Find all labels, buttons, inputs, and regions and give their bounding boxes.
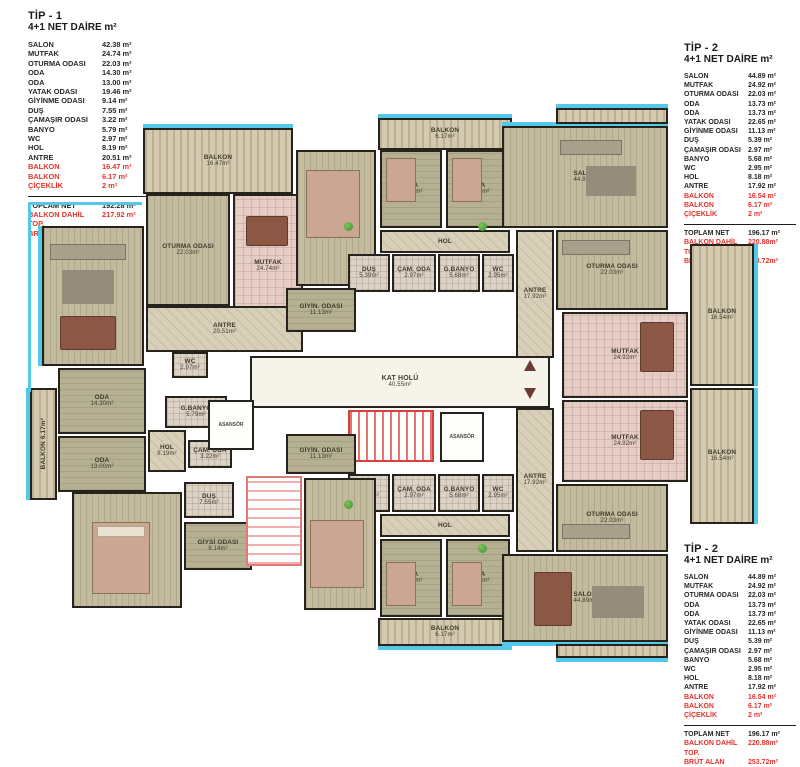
bed-icon — [386, 158, 416, 202]
room-balkon-tip2bottom-right: BALKON16.54m² — [690, 388, 754, 524]
plant-icon — [344, 500, 353, 509]
legend-row: BALKON16.54 m² — [684, 693, 796, 702]
kitchen-table-icon — [246, 216, 288, 246]
bed-icon — [452, 158, 482, 202]
elevator-right: ASANSÖR — [440, 412, 484, 462]
legend-row: ÇAMAŞIR ODASI2.97 m² — [684, 146, 796, 155]
legend-row: ANTRE17.92 m² — [684, 182, 796, 191]
arrow-down-icon — [524, 388, 536, 399]
legend-row: GİYİNME ODASI11.13 m² — [684, 628, 796, 637]
room-wc-tip2bottom: WC2.95m² — [482, 474, 514, 512]
room-hol-tip1: HOL8.19m² — [148, 430, 186, 472]
pillow-icon — [97, 526, 145, 537]
legend-row: SALON44.89 m² — [684, 573, 796, 582]
room-wc-tip1: WC2.97m² — [172, 352, 208, 378]
legend-tip1-subtitle: 4+1 NET DAİRE m² — [28, 22, 166, 33]
room-kat-holu: KAT HOLÜ40.55m² — [250, 356, 550, 408]
cicecklik-line-top-left — [30, 202, 142, 205]
legend-tip2-bottom-subtitle: 4+1 NET DAİRE m² — [684, 555, 796, 566]
legend-row: YATAK ODASI22.65 m² — [684, 619, 796, 628]
staircase-main — [348, 410, 434, 462]
legend-row: ANTRE17.92 m² — [684, 683, 796, 692]
legend-row: OTURMA ODASI22.03 m² — [28, 59, 166, 68]
room-dus-tip2top: DUŞ5.39m² — [348, 254, 390, 292]
room-camasir-tip2top: ÇAM. ODA2.97m² — [392, 254, 436, 292]
sofa-icon — [560, 140, 622, 155]
legend-row: ÇAMAŞIR ODASI2.97 m² — [684, 647, 796, 656]
legend-row: SALON44.89 m² — [684, 72, 796, 81]
staircase-fire-escape — [246, 476, 302, 566]
legend-row: BALKON6.17 m² — [684, 702, 796, 711]
legend-tip2-top-rows: SALON44.89 m²MUTFAK24.92 m²OTURMA ODASI2… — [684, 72, 796, 219]
room-antre-tip2bottom: ANTRE17.92m² — [516, 408, 554, 552]
legend-row: ODA13.73 m² — [684, 601, 796, 610]
legend-row: MUTFAK24.92 m² — [684, 81, 796, 90]
legend-row: ODA13.00 m² — [28, 78, 166, 87]
room-oda2-tip1: ODA13.00m² — [58, 436, 146, 492]
rug-icon — [62, 270, 114, 304]
cicecklik-line-left — [28, 202, 31, 392]
legend-row: BALKON6.17 m² — [684, 201, 796, 210]
legend-row: OTURMA ODASI22.03 m² — [684, 90, 796, 99]
legend-row: OTURMA ODASI22.03 m² — [684, 591, 796, 600]
legend-row: WC2.95 m² — [684, 665, 796, 674]
legend-tip2-bottom-rows: SALON44.89 m²MUTFAK24.92 m²OTURMA ODASI2… — [684, 573, 796, 720]
sofa-icon — [562, 524, 630, 539]
cicecklik-strip-bottom-right — [556, 644, 668, 658]
bed-icon — [452, 562, 482, 606]
legend-tip2-top-title: TİP - 2 — [684, 42, 796, 54]
legend-total-row: TOPLAM NET196.17 m² — [684, 229, 796, 238]
room-wc-tip2top: WC2.95m² — [482, 254, 514, 292]
rug-icon — [586, 166, 636, 196]
plant-icon — [344, 222, 353, 231]
room-gbanyo-tip2bottom: G.BANYO5.68m² — [438, 474, 480, 512]
room-balkon-tip1-top: BALKON16.47m² — [143, 128, 293, 194]
cicecklik-strip-top-right — [556, 108, 668, 124]
legend-tip2-bottom: TİP - 2 4+1 NET DAİRE m² SALON44.89 m²MU… — [684, 543, 796, 767]
legend-total-row: TOPLAM NET196.17 m² — [684, 730, 796, 739]
dining-table-icon — [60, 316, 116, 350]
legend-row: ÇAMAŞIR ODASI3.22 m² — [28, 115, 166, 124]
legend-row: WC2.95 m² — [684, 164, 796, 173]
legend-row: HOL8.18 m² — [684, 674, 796, 683]
room-dus-tip1: DUŞ7.55m² — [184, 482, 234, 518]
arrow-up-icon — [524, 360, 536, 371]
room-camasir-tip2bottom: ÇAM. ODA2.97m² — [392, 474, 436, 512]
room-hol-tip2bottom: HOL — [380, 514, 510, 537]
rug-icon — [592, 586, 644, 618]
legend-row: ODA13.73 m² — [684, 109, 796, 118]
legend-row: BANYO5.68 m² — [684, 155, 796, 164]
legend-tip2-bottom-totals: TOPLAM NET196.17 m²BALKON DAHİL TOP.220.… — [684, 725, 796, 767]
legend-total-row: BRÜT ALAN253.72m² — [684, 758, 796, 767]
plant-icon — [478, 222, 487, 231]
legend-row: DUŞ5.39 m² — [684, 637, 796, 646]
plant-icon — [478, 544, 487, 553]
room-oturma-tip1: OTURMA ODASI22.03m² — [146, 194, 230, 306]
room-giysi-tip1: GİYSİ ODASI9.14m² — [184, 522, 252, 570]
legend-row: YATAK ODASI22.65 m² — [684, 118, 796, 127]
bed-icon — [386, 562, 416, 606]
legend-row: MUTFAK24.74 m² — [28, 49, 166, 58]
legend-row: ODA13.73 m² — [684, 610, 796, 619]
legend-tip1-title: TİP - 1 — [28, 10, 166, 22]
room-hol-tip2top: HOL — [380, 230, 510, 253]
legend-tip2-top: TİP - 2 4+1 NET DAİRE m² SALON44.89 m²MU… — [684, 42, 796, 266]
room-antre-tip1: ANTRE20.51m² — [146, 306, 303, 352]
legend-total-row: BALKON DAHİL TOP.220.88m² — [684, 739, 796, 757]
bed-icon — [310, 520, 364, 588]
room-gbanyo-tip2top: G.BANYO5.68m² — [438, 254, 480, 292]
sofa-icon — [562, 240, 630, 255]
sofa-icon — [50, 244, 126, 260]
room-giyinme-tip2top: GİYİN. ODASI11.13m² — [286, 288, 356, 332]
legend-row: DUŞ7.55 m² — [28, 106, 166, 115]
legend-row: ODA14.30 m² — [28, 68, 166, 77]
room-balkon-tip1-left: BALKON 6.17m² — [30, 388, 57, 500]
room-balkon-tip2top: BALKON6.17m² — [378, 118, 512, 150]
legend-row: BANYO5.68 m² — [684, 656, 796, 665]
legend-row: MUTFAK24.92 m² — [684, 582, 796, 591]
legend-row: ÇİÇEKLİK2 m² — [684, 711, 796, 720]
room-balkon-tip2bottom: BALKON6.17m² — [378, 618, 512, 646]
dining-table-icon — [640, 410, 674, 460]
dining-table-icon — [640, 322, 674, 372]
legend-row: ODA13.73 m² — [684, 100, 796, 109]
room-oturma-tip2bottom: OTURMA ODASI22.03m² — [556, 484, 668, 552]
room-giyinme-tip2bottom: GİYİN. ODASI11.13m² — [286, 434, 356, 474]
floor-plan-canvas: TİP - 1 4+1 NET DAİRE m² SALON42.38 m²MU… — [0, 0, 800, 726]
legend-row: GİYİNME ODASI11.13 m² — [684, 127, 796, 136]
room-antre-tip2top: ANTRE17.92m² — [516, 230, 554, 358]
room-oda1-tip1: ODA14.30m² — [58, 368, 146, 434]
legend-tip2-bottom-title: TİP - 2 — [684, 543, 796, 555]
dining-table-icon — [534, 572, 572, 626]
legend-row: GİYİNME ODASI9.14 m² — [28, 96, 166, 105]
legend-row: BALKON16.54 m² — [684, 192, 796, 201]
legend-row: YATAK ODASI19.46 m² — [28, 87, 166, 96]
legend-row: SALON42.38 m² — [28, 40, 166, 49]
legend-tip2-top-subtitle: 4+1 NET DAİRE m² — [684, 54, 796, 65]
legend-row: ÇİÇEKLİK2 m² — [684, 210, 796, 219]
legend-row: DUŞ5.39 m² — [684, 136, 796, 145]
legend-row: HOL8.18 m² — [684, 173, 796, 182]
elevator-left: ASANSÖR — [208, 400, 254, 450]
room-balkon-tip2top-right: BALKON16.54m² — [690, 244, 754, 386]
